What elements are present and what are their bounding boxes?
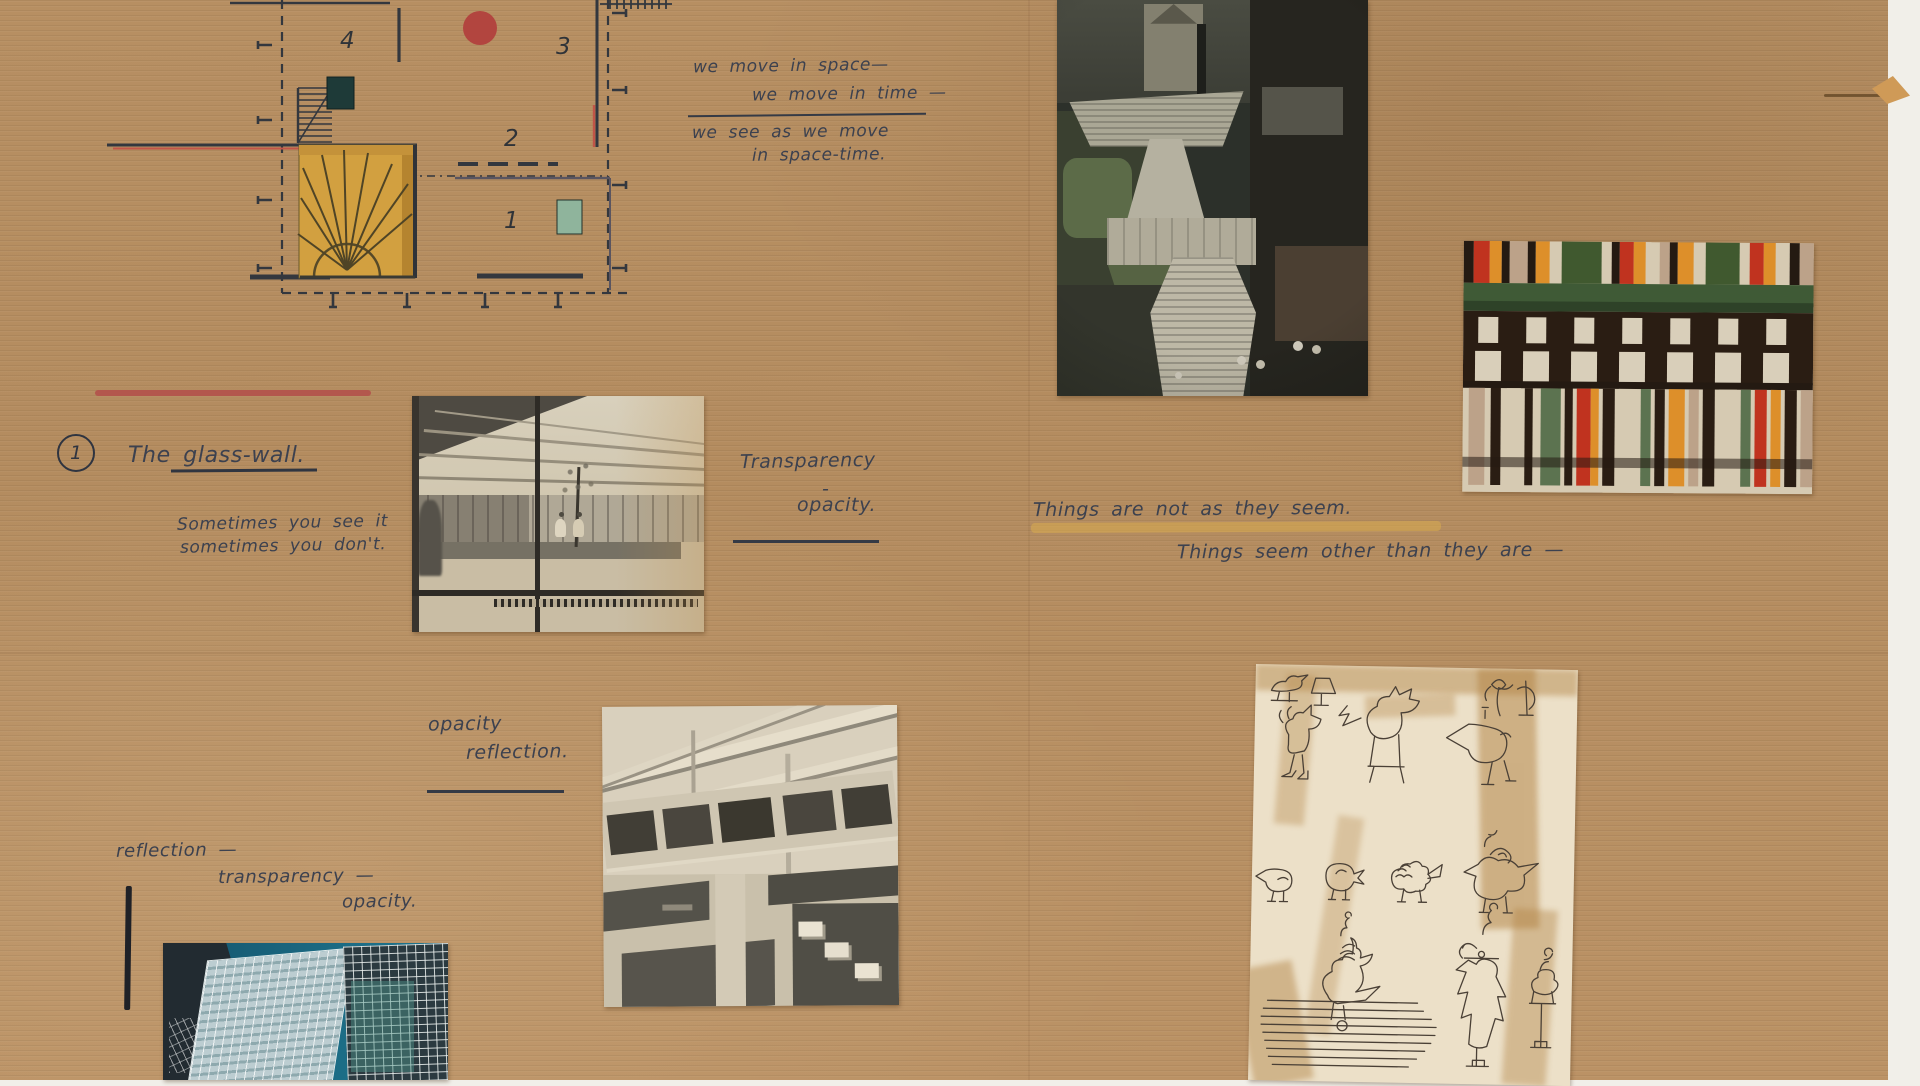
plan-label-3: 3 — [556, 34, 571, 60]
courtyard-aerial-photo — [602, 705, 899, 1007]
courtyard-cube-3 — [855, 963, 879, 978]
scan-backdrop-edge — [1888, 0, 1920, 1080]
transparency-line1: Transparency — [740, 449, 876, 473]
reflection-stack-line1: reflection — — [116, 839, 237, 862]
glasswall-figure-2-head — [577, 512, 582, 517]
doodle-figure-on-lines — [1322, 912, 1381, 1032]
board-crease-horizontal — [0, 652, 1888, 654]
glass-wall-interior-photo — [412, 396, 704, 632]
doodle-small-bird-1 — [1255, 869, 1292, 902]
doodle-tall-figure — [1454, 903, 1507, 1067]
motion-note-line4: in space-time. — [752, 144, 886, 165]
glasswall-figure-1 — [555, 519, 566, 537]
transparency-rule — [733, 540, 879, 543]
bird-doodles-svg — [1248, 664, 1578, 1086]
stripes-top-row — [1464, 241, 1814, 285]
floor-plan-drawing: 4 3 2 1 — [0, 0, 700, 340]
circled-number-one: 1 — [57, 434, 95, 472]
board-crease-vertical — [1028, 0, 1030, 1080]
doodle-bird-top-left — [1271, 674, 1336, 705]
courtyard-walkway — [715, 874, 745, 1006]
bird-doodle-drawing — [1248, 664, 1578, 1086]
glasswall-tree-canopy — [552, 448, 604, 508]
opacity-reflection-line1: opacity — [428, 712, 502, 735]
doodle-bignose-bird — [1463, 830, 1539, 913]
transparency-line3: opacity. — [797, 494, 876, 516]
plan-hatch-comb — [600, 0, 672, 9]
motion-note-rule — [688, 113, 926, 117]
doodle-fish-bird — [1446, 707, 1517, 785]
reflection-stack-line3: opacity. — [342, 890, 417, 912]
reflection-stack-line2: transparency — — [218, 865, 375, 888]
striped-textile-collage — [1462, 241, 1814, 494]
plan-red-dot — [463, 11, 497, 45]
glasswall-roof-overhang — [412, 396, 587, 462]
courtyard-cube-2 — [825, 942, 849, 957]
glasswall-person-silhouette — [418, 500, 442, 576]
towers-glass-slab — [183, 948, 353, 1080]
doodle-small-bird-2 — [1325, 863, 1364, 900]
courtyard-window-void-3 — [718, 797, 775, 842]
red-accent-line — [95, 390, 371, 396]
courtyard-window-void-2 — [662, 804, 713, 849]
motion-note-line2: we move in time — — [752, 83, 947, 106]
opacity-reflection-rule — [427, 790, 564, 793]
black-vertical-bar — [124, 886, 132, 1010]
glass-wall-title: The glass-wall. — [128, 443, 305, 468]
stripes-hook-row — [1463, 311, 1813, 385]
motion-note-line3: we see as we move — [692, 121, 889, 143]
glasswall-figure-2 — [573, 519, 584, 537]
doodle-plant-stand — [1529, 948, 1559, 1048]
things-yellow-highlight — [1031, 521, 1441, 533]
glasswall-mullion-center — [535, 396, 540, 632]
doodle-ruled-lines — [1260, 1000, 1436, 1067]
doodle-bird-boots — [1278, 704, 1321, 779]
plan-sun-square — [298, 145, 415, 278]
glasswall-stain — [616, 396, 704, 632]
doodle-flourish-top-right — [1485, 679, 1535, 716]
plan-green-square — [557, 200, 582, 234]
plan-teal-square — [327, 77, 354, 109]
glasswall-mullion-left — [412, 396, 419, 632]
courtyard-window-void-4 — [782, 790, 836, 835]
motion-note-line1: we move in space— — [693, 55, 889, 78]
courtyard-cube-1 — [798, 922, 822, 937]
doodle-fluffy-bird — [1391, 861, 1442, 903]
plan-label-2: 2 — [504, 126, 519, 152]
courtyard-bench — [662, 904, 692, 910]
towers-green-glass — [351, 981, 414, 1071]
cardboard-collage-board: 4 3 2 1 we move in space— we move in tim… — [0, 0, 1888, 1080]
things-line2: Things seem other than they are — — [1177, 539, 1564, 564]
glass-towers-photo — [163, 943, 448, 1080]
plan-label-4: 4 — [340, 28, 355, 54]
spanish-steps-aerial-photo — [1057, 0, 1368, 396]
rome-vignette — [1057, 0, 1368, 396]
opacity-reflection-line2: reflection. — [466, 740, 569, 764]
courtyard-window-void-1 — [607, 810, 658, 855]
doodle-bird-chair — [1338, 686, 1420, 784]
glass-wall-underline — [171, 468, 317, 472]
glass-wall-line2: sometimes you don't. — [180, 534, 387, 558]
plan-label-1: 1 — [504, 208, 519, 234]
courtyard-window-void-5 — [841, 784, 892, 829]
glass-wall-line1: Sometimes you see it — [177, 511, 388, 535]
things-line1: Things are not as they seem. — [1033, 497, 1352, 521]
